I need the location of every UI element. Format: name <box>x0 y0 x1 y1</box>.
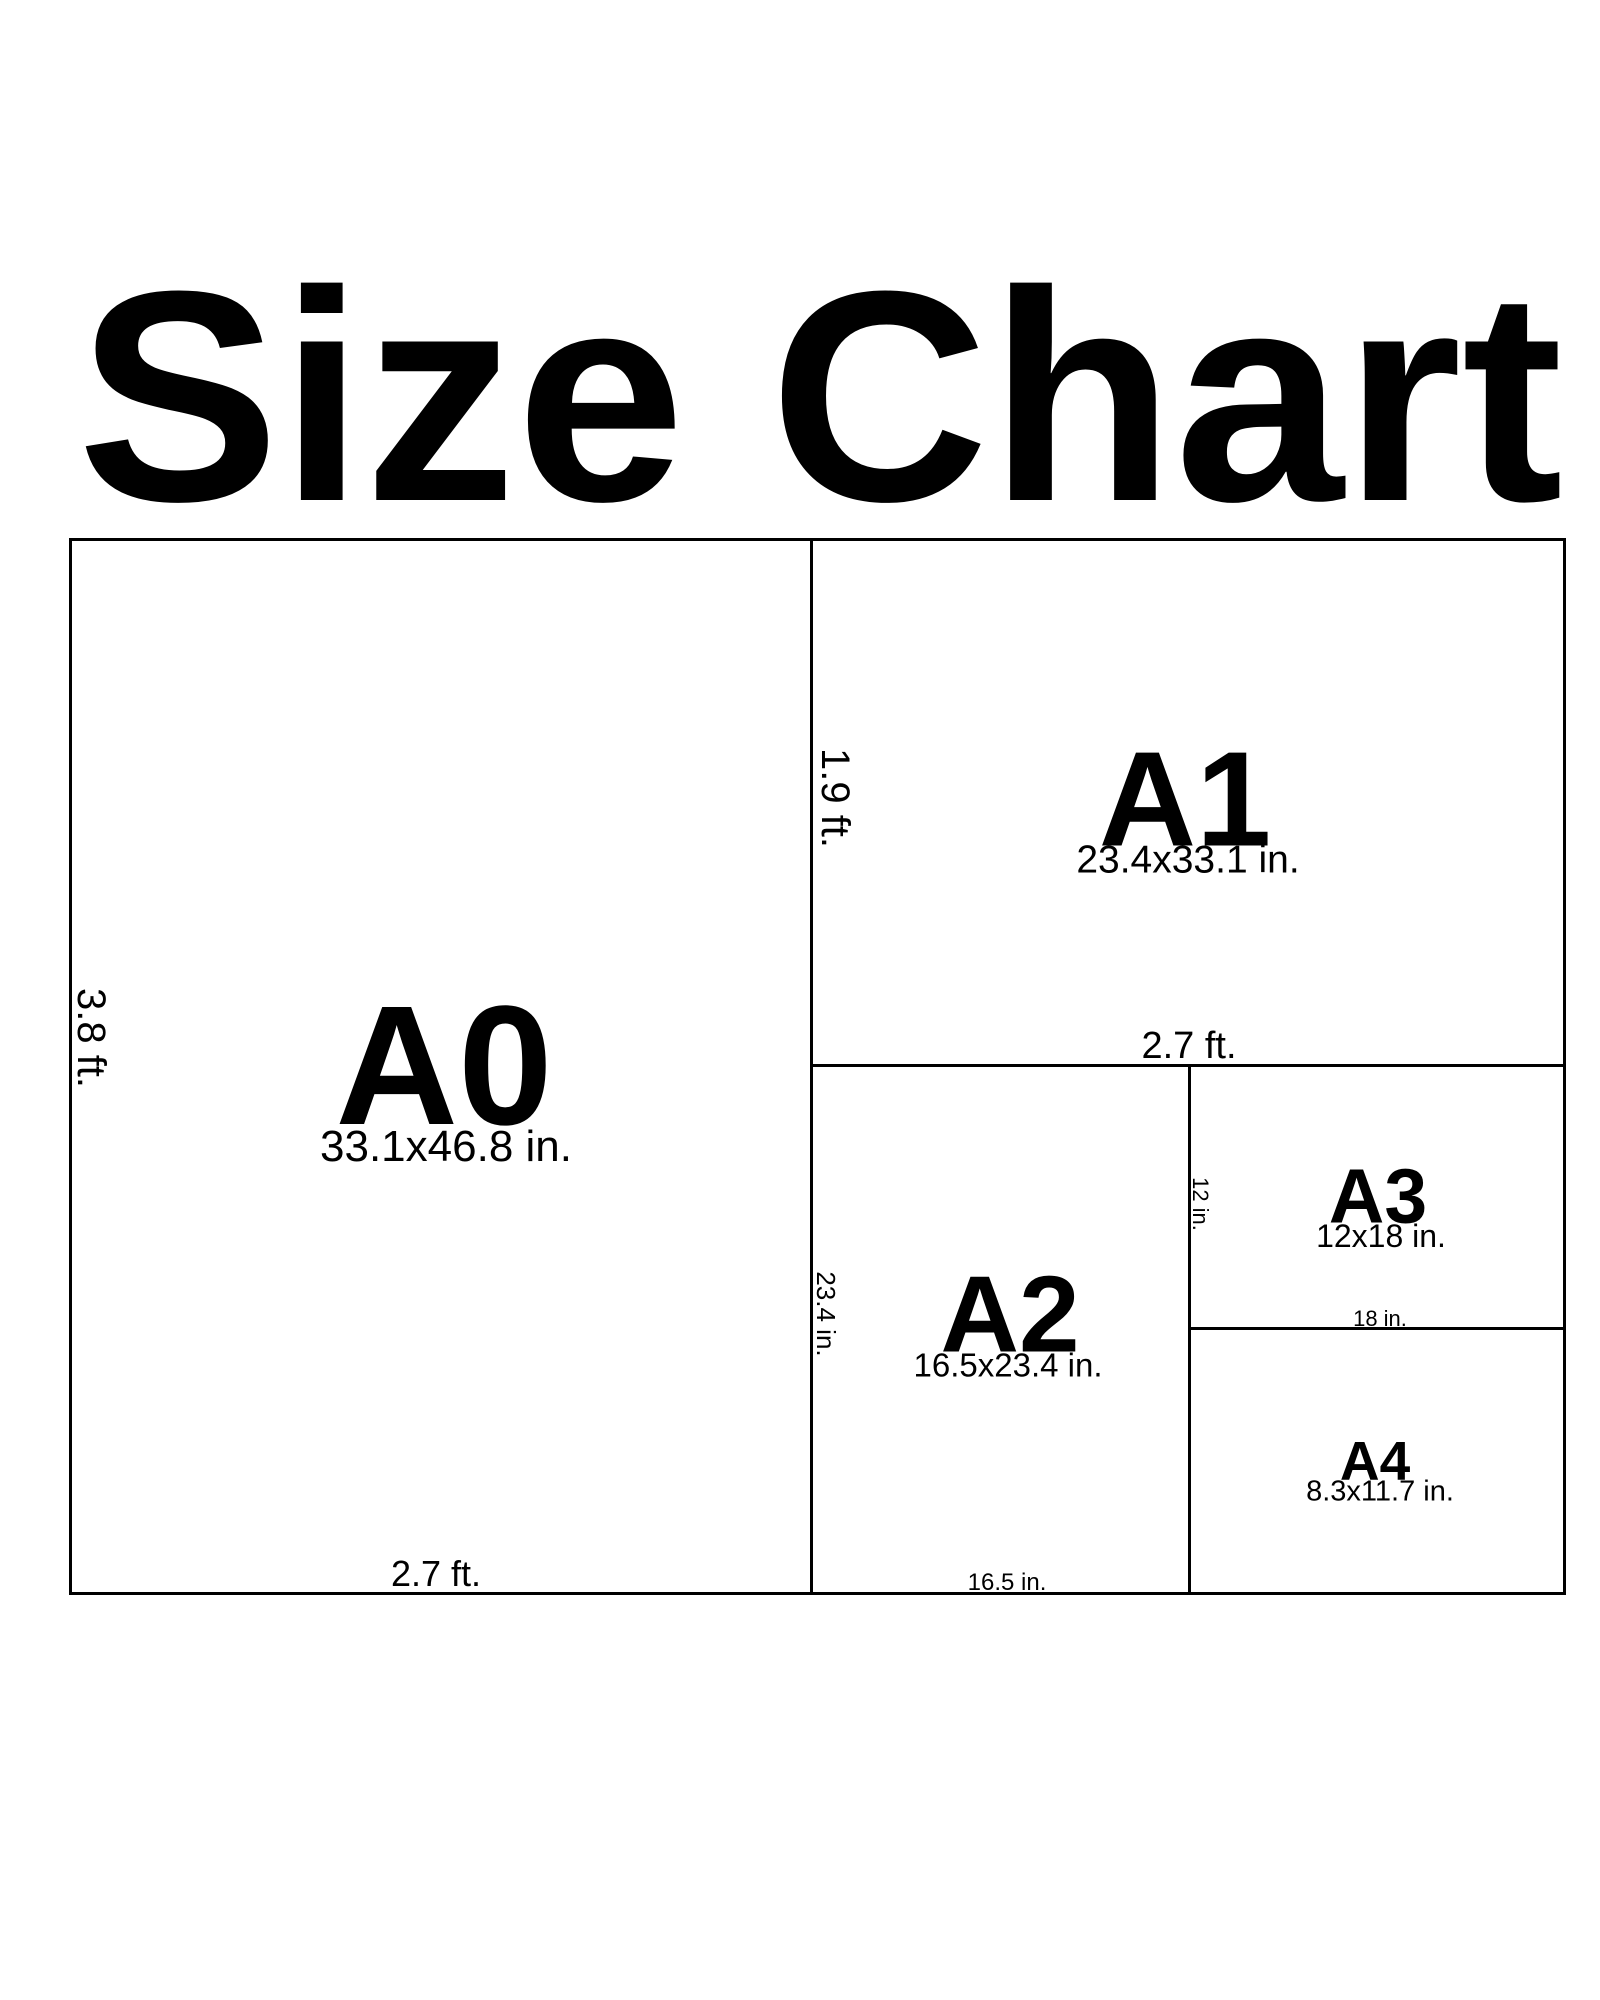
panel-a3-height-label: 12 in. <box>1189 1177 1211 1231</box>
panel-a1-height-label: 1.9 ft. <box>815 748 855 848</box>
panel-a3-dims: 12x18 in. <box>1316 1220 1446 1252</box>
panel-a2-height-label: 23.4 in. <box>813 1271 839 1356</box>
panel-a3-width-label: 18 in. <box>1353 1308 1407 1330</box>
panel-a0-height-label: 3.8 ft. <box>71 988 111 1088</box>
panel-a0-width-label: 2.7 ft. <box>391 1556 481 1592</box>
panel-a2-width-label: 16.5 in. <box>968 1571 1047 1595</box>
panel-a1-dims: 23.4x33.1 in. <box>1076 841 1299 880</box>
page-title: Size Chart <box>77 228 1563 520</box>
panel-a2-dims: 16.5x23.4 in. <box>914 1349 1103 1382</box>
panel-a0-dims: 33.1x46.8 in. <box>320 1125 572 1169</box>
panel-a1-width-label: 2.7 ft. <box>1141 1027 1236 1065</box>
size-chart-page: Size Chart A0 33.1x46.8 in. 3.8 ft. 2.7 … <box>0 0 1600 2000</box>
panel-a4-dims: 8.3x11.7 in. <box>1306 1478 1454 1507</box>
title-graphic: Size Chart <box>0 0 1600 520</box>
